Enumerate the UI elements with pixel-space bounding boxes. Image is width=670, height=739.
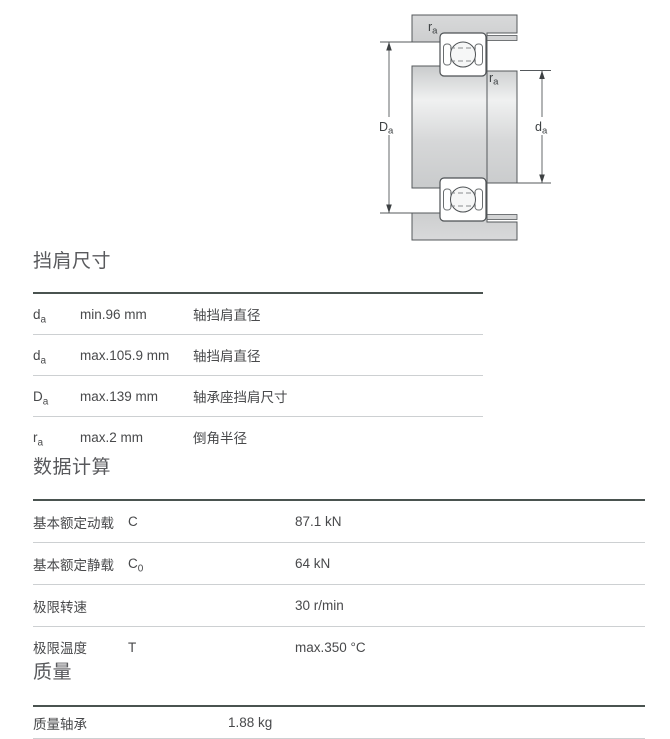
arrow-up-da (539, 71, 545, 80)
bearing-section-top (440, 33, 486, 76)
value-cell: 64 kN (295, 543, 330, 584)
value-cell: 30 r/min (295, 585, 344, 626)
calculation-data-table: 基本额定动载 C 87.1 kN 基本额定静载 C0 64 kN 极限转速 30… (33, 499, 645, 667)
description-cell: 轴挡肩直径 (193, 294, 261, 334)
shaft-block (412, 66, 517, 188)
table-row: da min.96 mm 轴挡肩直径 (33, 294, 483, 335)
housing-bore-strip-top (487, 36, 517, 41)
value-cell: max.105.9 mm (80, 335, 169, 375)
section-title-mass: 质量 (33, 657, 72, 684)
bearing-cross-section-diagram: Da da ra ra (0, 0, 670, 246)
description-cell: 轴挡肩直径 (193, 335, 261, 375)
label-cell: 基本额定静载 (33, 543, 114, 584)
symbol-cell: ra (33, 417, 43, 457)
symbol-cell: C0 (128, 543, 143, 584)
label-cell: 基本额定动载 (33, 501, 114, 542)
table-row: 极限温度 T max.350 °C (33, 627, 645, 667)
mass-table: 质量轴承 1.88 kg (33, 705, 645, 739)
arrow-down-Da (386, 205, 392, 214)
value-cell: max.350 °C (295, 627, 366, 667)
description-cell: 倒角半径 (193, 417, 247, 457)
value-cell: 1.88 kg (228, 707, 272, 738)
symbol-cell: C (128, 501, 138, 542)
value-cell: min.96 mm (80, 294, 147, 334)
section-title-calculation-data: 数据计算 (33, 452, 111, 479)
description-cell: 轴承座挡肩尺寸 (193, 376, 288, 416)
value-cell: 87.1 kN (295, 501, 342, 542)
symbol-cell: da (33, 294, 46, 334)
table-row: 基本额定静载 C0 64 kN (33, 543, 645, 585)
table-row: ra max.2 mm 倒角半径 (33, 417, 483, 457)
housing-bore-strip-bottom (487, 215, 517, 220)
arrow-down-da (539, 175, 545, 184)
symbol-cell: T (128, 627, 136, 667)
symbol-cell: Da (33, 376, 48, 416)
table-row: Da max.139 mm 轴承座挡肩尺寸 (33, 376, 483, 417)
table-row: 质量轴承 1.88 kg (33, 707, 645, 739)
table-row: 基本额定动载 C 87.1 kN (33, 501, 645, 543)
bearing-section-bottom (440, 178, 486, 221)
arrow-up-Da (386, 42, 392, 51)
bearing-spec-page: { "diagram": { "label_Da": { "sym": "D",… (0, 0, 670, 739)
value-cell: max.2 mm (80, 417, 143, 457)
table-row: 极限转速 30 r/min (33, 585, 645, 627)
label-cell: 极限转速 (33, 585, 87, 626)
shoulder-dimensions-table: da min.96 mm 轴挡肩直径 da max.105.9 mm 轴挡肩直径… (33, 292, 483, 457)
label-cell: 质量轴承 (33, 707, 87, 738)
value-cell: max.139 mm (80, 376, 158, 416)
table-row: da max.105.9 mm 轴挡肩直径 (33, 335, 483, 376)
symbol-cell: da (33, 335, 46, 375)
section-title-shoulder-dimensions: 挡肩尺寸 (33, 246, 111, 273)
